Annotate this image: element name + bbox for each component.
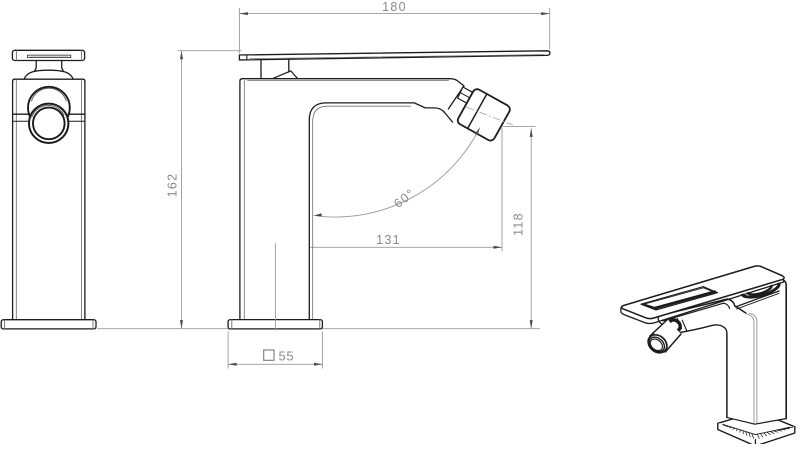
svg-text:118: 118 — [512, 212, 526, 236]
svg-text:180: 180 — [382, 0, 407, 14]
svg-text:55: 55 — [279, 348, 295, 363]
svg-text:131: 131 — [376, 233, 401, 247]
svg-text:162: 162 — [166, 173, 180, 198]
